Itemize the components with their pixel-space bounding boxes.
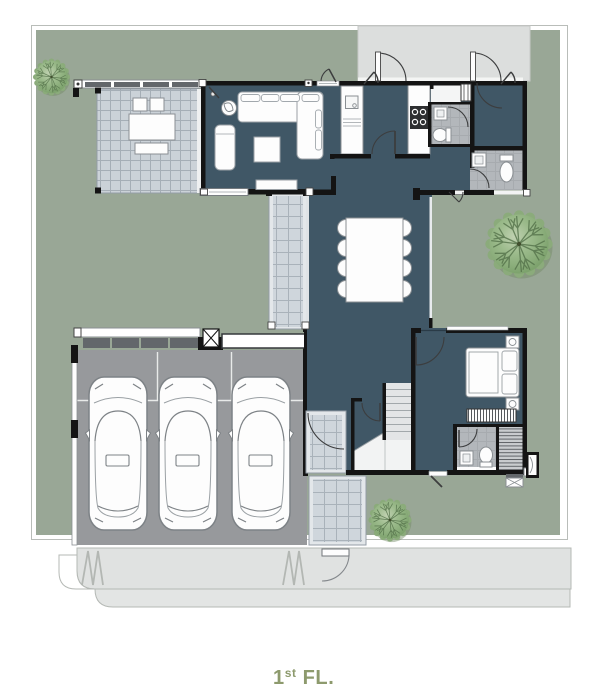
svg-text:1stFL.: 1stFL. xyxy=(273,666,334,689)
